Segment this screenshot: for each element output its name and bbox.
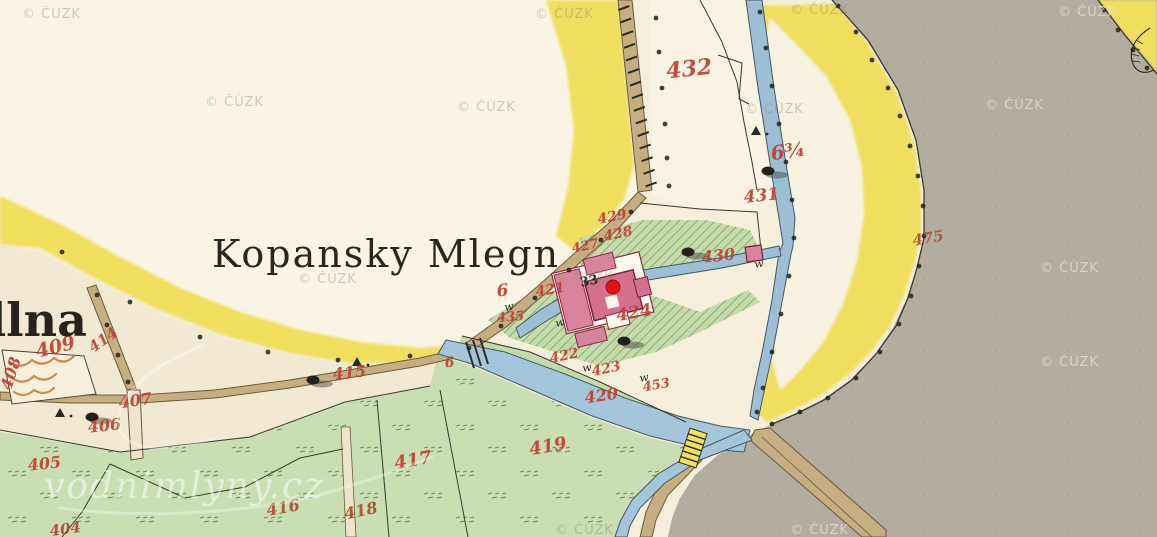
parcel-number-label: 6¾ bbox=[769, 137, 807, 166]
boundary-dot bbox=[897, 322, 902, 327]
parcel-number-label: 431 bbox=[743, 184, 780, 208]
cuzk-watermark: © ČÚZK bbox=[1040, 354, 1099, 370]
boundary-dot bbox=[665, 156, 670, 161]
parcel-number-label: 404 bbox=[49, 518, 83, 537]
boundary-dot bbox=[770, 422, 775, 427]
boundary-dot bbox=[826, 396, 831, 401]
map-title: Kopansky Mlegn bbox=[212, 232, 560, 276]
parcel-number-label: 432 bbox=[665, 54, 713, 85]
boundary-dot bbox=[1131, 48, 1136, 53]
boundary-dot bbox=[116, 353, 121, 358]
boundary-dot bbox=[467, 346, 472, 351]
mill-marker[interactable] bbox=[606, 280, 620, 294]
boundary-dot bbox=[798, 410, 803, 415]
cuzk-watermark: © ČÚZK bbox=[745, 101, 804, 117]
cuzk-watermark: © ČÚZK bbox=[555, 522, 614, 537]
boundary-dot bbox=[60, 250, 65, 255]
boundary-dot bbox=[660, 86, 665, 91]
boundary-dot bbox=[770, 84, 775, 89]
cuzk-watermark: © ČÚZK bbox=[205, 94, 264, 110]
boundary-dot bbox=[792, 236, 797, 241]
survey-dot bbox=[367, 364, 370, 367]
boundary-dot bbox=[667, 184, 672, 189]
cuzk-watermark: © ČÚZK bbox=[1058, 4, 1117, 20]
boundary-dot bbox=[886, 86, 891, 91]
boundary-dot bbox=[898, 114, 903, 119]
boundary-dot bbox=[408, 354, 413, 359]
boundary-dot bbox=[764, 46, 769, 51]
cuzk-watermark: © ČÚZK bbox=[985, 97, 1044, 113]
boundary-dot bbox=[779, 312, 784, 317]
vodnimlyny-logo-text: vodnimlyny.cz bbox=[44, 466, 325, 507]
boundary-dot bbox=[126, 380, 131, 385]
boundary-dot bbox=[916, 174, 921, 179]
survey-dot bbox=[766, 133, 769, 136]
boundary-dot bbox=[854, 30, 859, 35]
boundary-dot bbox=[663, 122, 668, 127]
bush-icon bbox=[618, 337, 631, 346]
boundary-dot bbox=[770, 350, 775, 355]
boundary-dot bbox=[629, 210, 634, 215]
map-viewport[interactable]: wwwww 4326¾43147542942842743042464214356… bbox=[0, 0, 1157, 537]
boundary-dot bbox=[777, 122, 782, 127]
boundary-dot bbox=[198, 335, 203, 340]
boundary-dot bbox=[790, 198, 795, 203]
boundary-dot bbox=[854, 376, 859, 381]
parcel-number-label: 6 bbox=[496, 281, 510, 302]
boundary-dot bbox=[758, 10, 763, 15]
boundary-dot bbox=[878, 350, 883, 355]
parcel-number-label: 415 bbox=[332, 361, 367, 383]
survey-dot bbox=[70, 415, 73, 418]
cuzk-watermark: © ČÚZK bbox=[790, 2, 849, 18]
boundary-dot bbox=[921, 204, 926, 209]
historic-cadastral-map: wwwww 4326¾43147542942842743042464214356… bbox=[0, 0, 1157, 537]
cuzk-watermark: © ČÚZK bbox=[22, 6, 81, 22]
bush-icon bbox=[307, 376, 320, 385]
boundary-dot bbox=[787, 274, 792, 279]
boundary-dot bbox=[917, 264, 922, 269]
boundary-dot bbox=[1145, 66, 1150, 71]
partial-place-name: dlna bbox=[0, 293, 87, 347]
parcel-number-label: 6 bbox=[444, 355, 455, 372]
boundary-dot bbox=[657, 50, 662, 55]
boundary-dot bbox=[761, 386, 766, 391]
boundary-dot bbox=[654, 16, 659, 21]
cuzk-watermark: © ČÚZK bbox=[790, 522, 849, 537]
boundary-dot bbox=[128, 300, 133, 305]
cuzk-watermark: © ČÚZK bbox=[1040, 260, 1099, 276]
boundary-dot bbox=[95, 293, 100, 298]
boundary-dot bbox=[909, 294, 914, 299]
parcel-number-label: 406 bbox=[87, 414, 122, 436]
boundary-dot bbox=[599, 238, 604, 243]
bush-icon bbox=[682, 248, 695, 257]
cuzk-watermark: © ČÚZK bbox=[555, 269, 614, 285]
parcel-number-label: 430 bbox=[701, 244, 736, 266]
cuzk-watermark: © ČÚZK bbox=[535, 6, 594, 22]
boundary-dot bbox=[336, 358, 341, 363]
cuzk-watermark: © ČÚZK bbox=[457, 99, 516, 115]
boundary-dot bbox=[870, 58, 875, 63]
boundary-dot bbox=[1116, 28, 1121, 33]
bush-icon bbox=[762, 167, 775, 176]
boundary-dot bbox=[266, 350, 271, 355]
boundary-dot bbox=[755, 410, 760, 415]
boundary-dot bbox=[908, 144, 913, 149]
cuzk-watermark: © ČÚZK bbox=[298, 271, 357, 287]
parcel-number-label: 435 bbox=[497, 309, 525, 326]
